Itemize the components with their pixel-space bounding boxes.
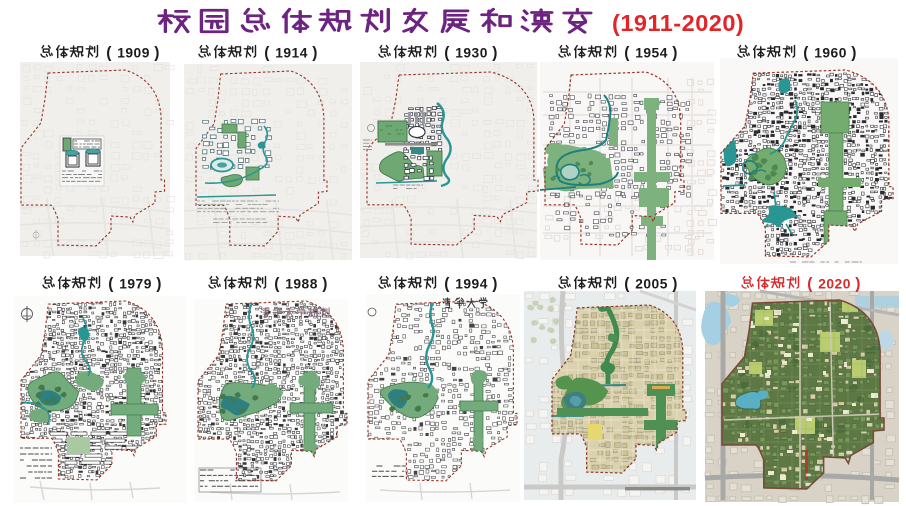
svg-text:): ) [851,45,856,62]
svg-text:(: ( [274,276,280,293]
svg-text:): ) [492,45,497,62]
svg-text:2005: 2005 [635,277,668,292]
svg-text:(: ( [624,276,630,293]
svg-text:(1911-2020): (1911-2020) [612,10,744,36]
svg-text:(: ( [807,276,813,293]
svg-text:1988: 1988 [285,277,318,292]
svg-text:): ) [312,45,317,62]
svg-text:): ) [855,276,860,293]
svg-text:(: ( [106,45,112,62]
svg-text:): ) [672,276,677,293]
svg-text:1954: 1954 [635,46,668,61]
svg-text:(: ( [803,45,809,62]
svg-text:): ) [156,276,161,293]
svg-text:1909: 1909 [117,46,150,61]
svg-text:1994: 1994 [455,277,488,292]
svg-text:): ) [322,276,327,293]
svg-text:2020: 2020 [818,277,851,292]
svg-text:1914: 1914 [275,46,308,61]
svg-text:1960: 1960 [814,46,847,61]
svg-text:1930: 1930 [455,46,488,61]
svg-text:(: ( [264,45,270,62]
svg-text:): ) [672,45,677,62]
svg-text:(: ( [444,45,450,62]
svg-text:(: ( [444,276,450,293]
svg-text:1979: 1979 [119,277,152,292]
svg-text:): ) [492,276,497,293]
svg-text:(: ( [624,45,630,62]
svg-text:): ) [154,45,159,62]
svg-text:(: ( [108,276,114,293]
